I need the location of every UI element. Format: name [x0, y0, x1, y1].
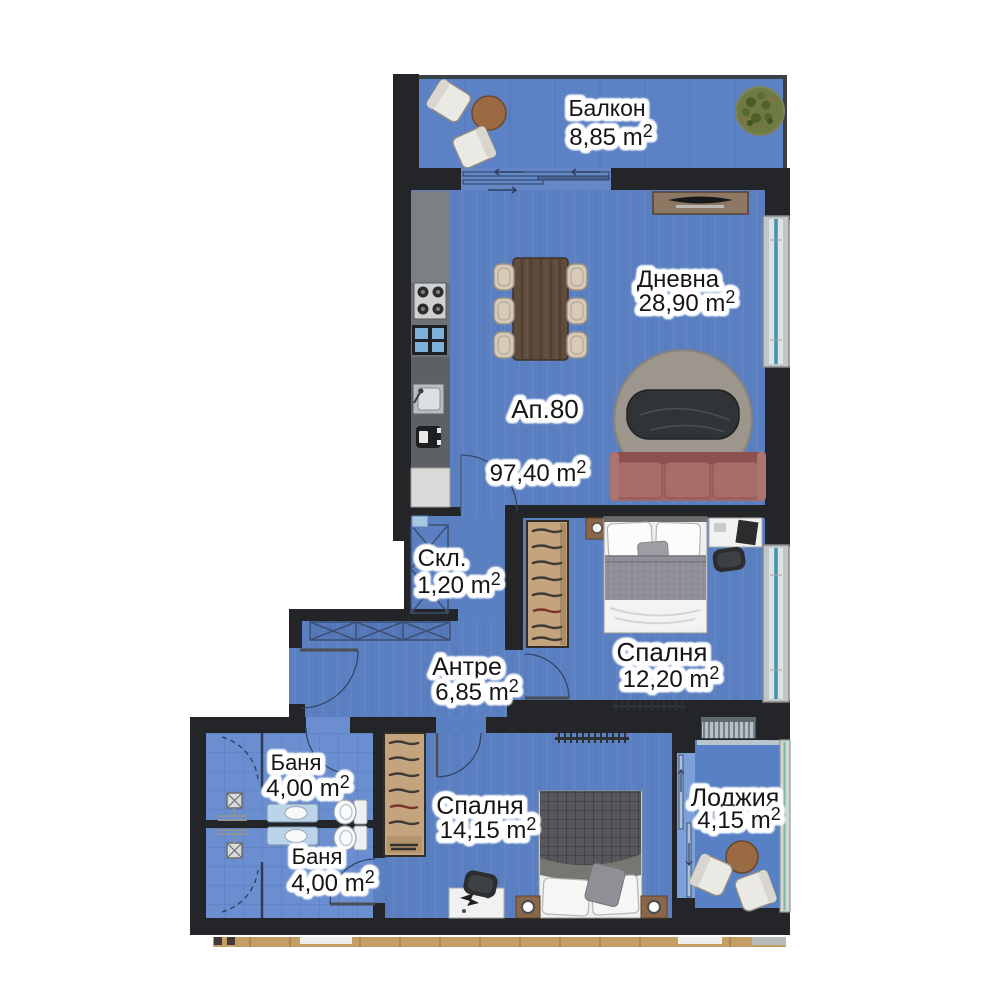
svg-text:Балкон: Балкон [568, 95, 645, 121]
svg-text:97,40 m2: 97,40 m2 [490, 457, 587, 487]
svg-text:6,85 m2: 6,85 m2 [435, 676, 518, 706]
svg-text:Антре: Антре [432, 653, 502, 681]
svg-text:4,00 m2: 4,00 m2 [291, 867, 374, 897]
svg-text:8,85 m2: 8,85 m2 [569, 121, 652, 151]
svg-text:Спалня: Спалня [436, 792, 523, 820]
svg-text:Ап.80: Ап.80 [511, 394, 579, 424]
svg-text:4,00 m2: 4,00 m2 [266, 772, 349, 802]
svg-text:12,20 m2: 12,20 m2 [623, 663, 720, 693]
svg-text:Баня: Баня [292, 844, 343, 869]
svg-text:28,90 m2: 28,90 m2 [639, 287, 736, 317]
svg-text:Баня: Баня [271, 750, 322, 775]
svg-text:1,20 m2: 1,20 m2 [417, 569, 500, 599]
svg-text:4,15 m2: 4,15 m2 [697, 804, 780, 834]
svg-text:Спалня: Спалня [617, 637, 708, 667]
svg-text:Скл.: Скл. [418, 545, 467, 572]
svg-text:Дневна: Дневна [637, 266, 720, 293]
svg-text:14,15 m2: 14,15 m2 [440, 814, 537, 844]
